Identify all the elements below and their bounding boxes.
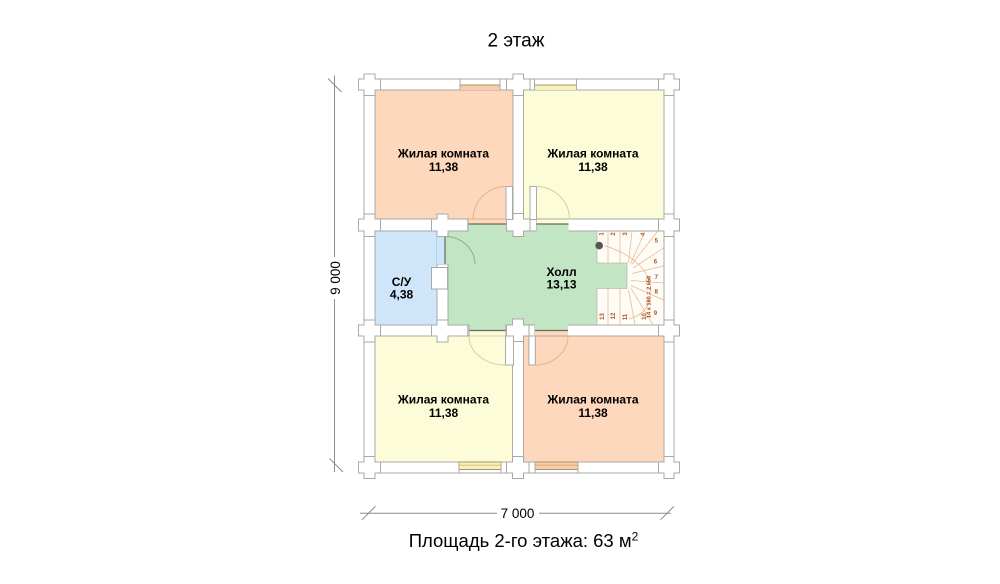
svg-text:Жилая комната: Жилая комната	[397, 147, 490, 161]
svg-text:4,38: 4,38	[390, 288, 414, 302]
svg-text:Площадь 2-го этажа: 63 м2: Площадь 2-го этажа: 63 м2	[409, 530, 639, 552]
svg-text:Жилая комната: Жилая комната	[546, 393, 639, 407]
svg-text:2 этаж: 2 этаж	[488, 31, 545, 52]
svg-text:Жилая комната: Жилая комната	[546, 147, 639, 161]
svg-text:7 000: 7 000	[501, 506, 535, 521]
svg-text:11,38: 11,38	[429, 406, 459, 420]
svg-text:14 x 190 = 2 658: 14 x 190 = 2 658	[646, 276, 652, 318]
svg-text:13,13: 13,13	[546, 278, 576, 292]
svg-text:9 000: 9 000	[328, 261, 343, 295]
svg-text:11,38: 11,38	[578, 406, 608, 420]
svg-text:11,38: 11,38	[429, 160, 459, 174]
svg-text:12: 12	[611, 312, 617, 319]
svg-text:Жилая комната: Жилая комната	[397, 393, 490, 407]
svg-text:11: 11	[623, 313, 629, 320]
svg-text:11,38: 11,38	[578, 160, 608, 174]
svg-text:13: 13	[600, 313, 606, 320]
